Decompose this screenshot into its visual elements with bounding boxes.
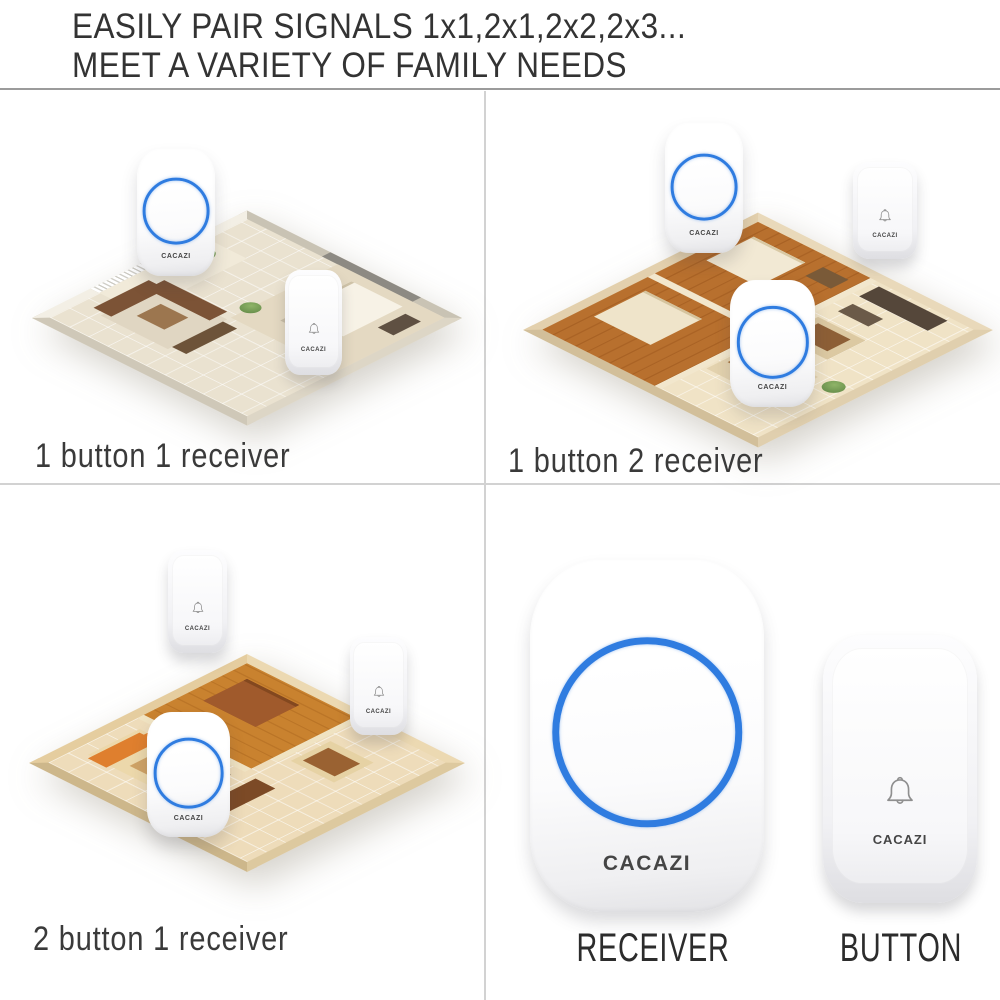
quadrant-products: CACAZI CACAZI RECEIVER BUTTON <box>486 485 1000 1000</box>
receiver-device: CACAZI <box>665 123 743 253</box>
doorbell-button-device: CACAZI <box>285 270 342 375</box>
receiver-device: CACAZI <box>730 280 815 407</box>
header-line-1: EASILY PAIR SIGNALS 1x1,2x1,2x2,2x3... <box>72 7 686 47</box>
led-ring <box>143 178 210 245</box>
bell-icon <box>305 321 321 337</box>
doorbell-button-device: CACAZI <box>168 550 227 653</box>
button-face: CACAZI <box>288 275 338 367</box>
receiver-device-large: CACAZI <box>530 560 764 912</box>
doorbell-button-device: CACAZI <box>350 637 407 735</box>
kitchen-island <box>838 304 883 327</box>
led-ring <box>552 638 742 828</box>
receiver-device: CACAZI <box>147 712 230 837</box>
button-face: CACAZI <box>353 642 403 728</box>
button-face: CACAZI <box>172 555 224 646</box>
bell-icon <box>876 207 894 225</box>
button-face: CACAZI <box>857 167 913 252</box>
brand-logo: CACAZI <box>530 852 764 876</box>
brand-logo: CACAZI <box>147 815 230 822</box>
plant <box>816 378 850 395</box>
brand-logo: CACAZI <box>857 233 913 239</box>
caption-1x1: 1 button 1 receiver <box>35 437 291 476</box>
brand-logo: CACAZI <box>288 347 338 353</box>
bell-icon <box>880 772 921 813</box>
caption-1x2: 1 button 2 receiver <box>508 442 764 481</box>
receiver-device: CACAZI <box>137 149 215 276</box>
brand-logo: CACAZI <box>137 253 215 260</box>
brand-logo: CACAZI <box>665 230 743 237</box>
led-ring <box>736 306 808 378</box>
doorbell-pairing-infographic: EASILY PAIR SIGNALS 1x1,2x1,2x2,2x3... M… <box>0 0 1000 1000</box>
quadrant-1x2: CACAZI CACAZI CACAZI 1 button 2 receiver <box>486 90 1000 483</box>
led-ring <box>671 153 738 220</box>
caption-2x1: 2 button 1 receiver <box>33 920 289 959</box>
bell-icon <box>189 599 206 616</box>
bell-icon <box>370 684 386 700</box>
receiver-label: RECEIVER <box>545 926 761 971</box>
quadrant-2x1: CACAZI CACAZI CACAZI 2 button 1 receiver <box>0 485 484 1000</box>
brand-logo: CACAZI <box>832 832 968 847</box>
doorbell-button-device: CACAZI <box>853 162 917 259</box>
button-label: BUTTON <box>793 926 1000 971</box>
header-line-2: MEET A VARIETY OF FAMILY NEEDS <box>72 46 627 86</box>
brand-logo: CACAZI <box>353 709 403 715</box>
led-ring <box>153 738 224 809</box>
button-face: CACAZI <box>832 648 968 884</box>
brand-logo: CACAZI <box>730 384 815 391</box>
quadrant-1x1: CACAZI CACAZI 1 button 1 receiver <box>0 90 484 483</box>
brand-logo: CACAZI <box>172 626 224 632</box>
doorbell-button-device-large: CACAZI <box>823 635 977 903</box>
